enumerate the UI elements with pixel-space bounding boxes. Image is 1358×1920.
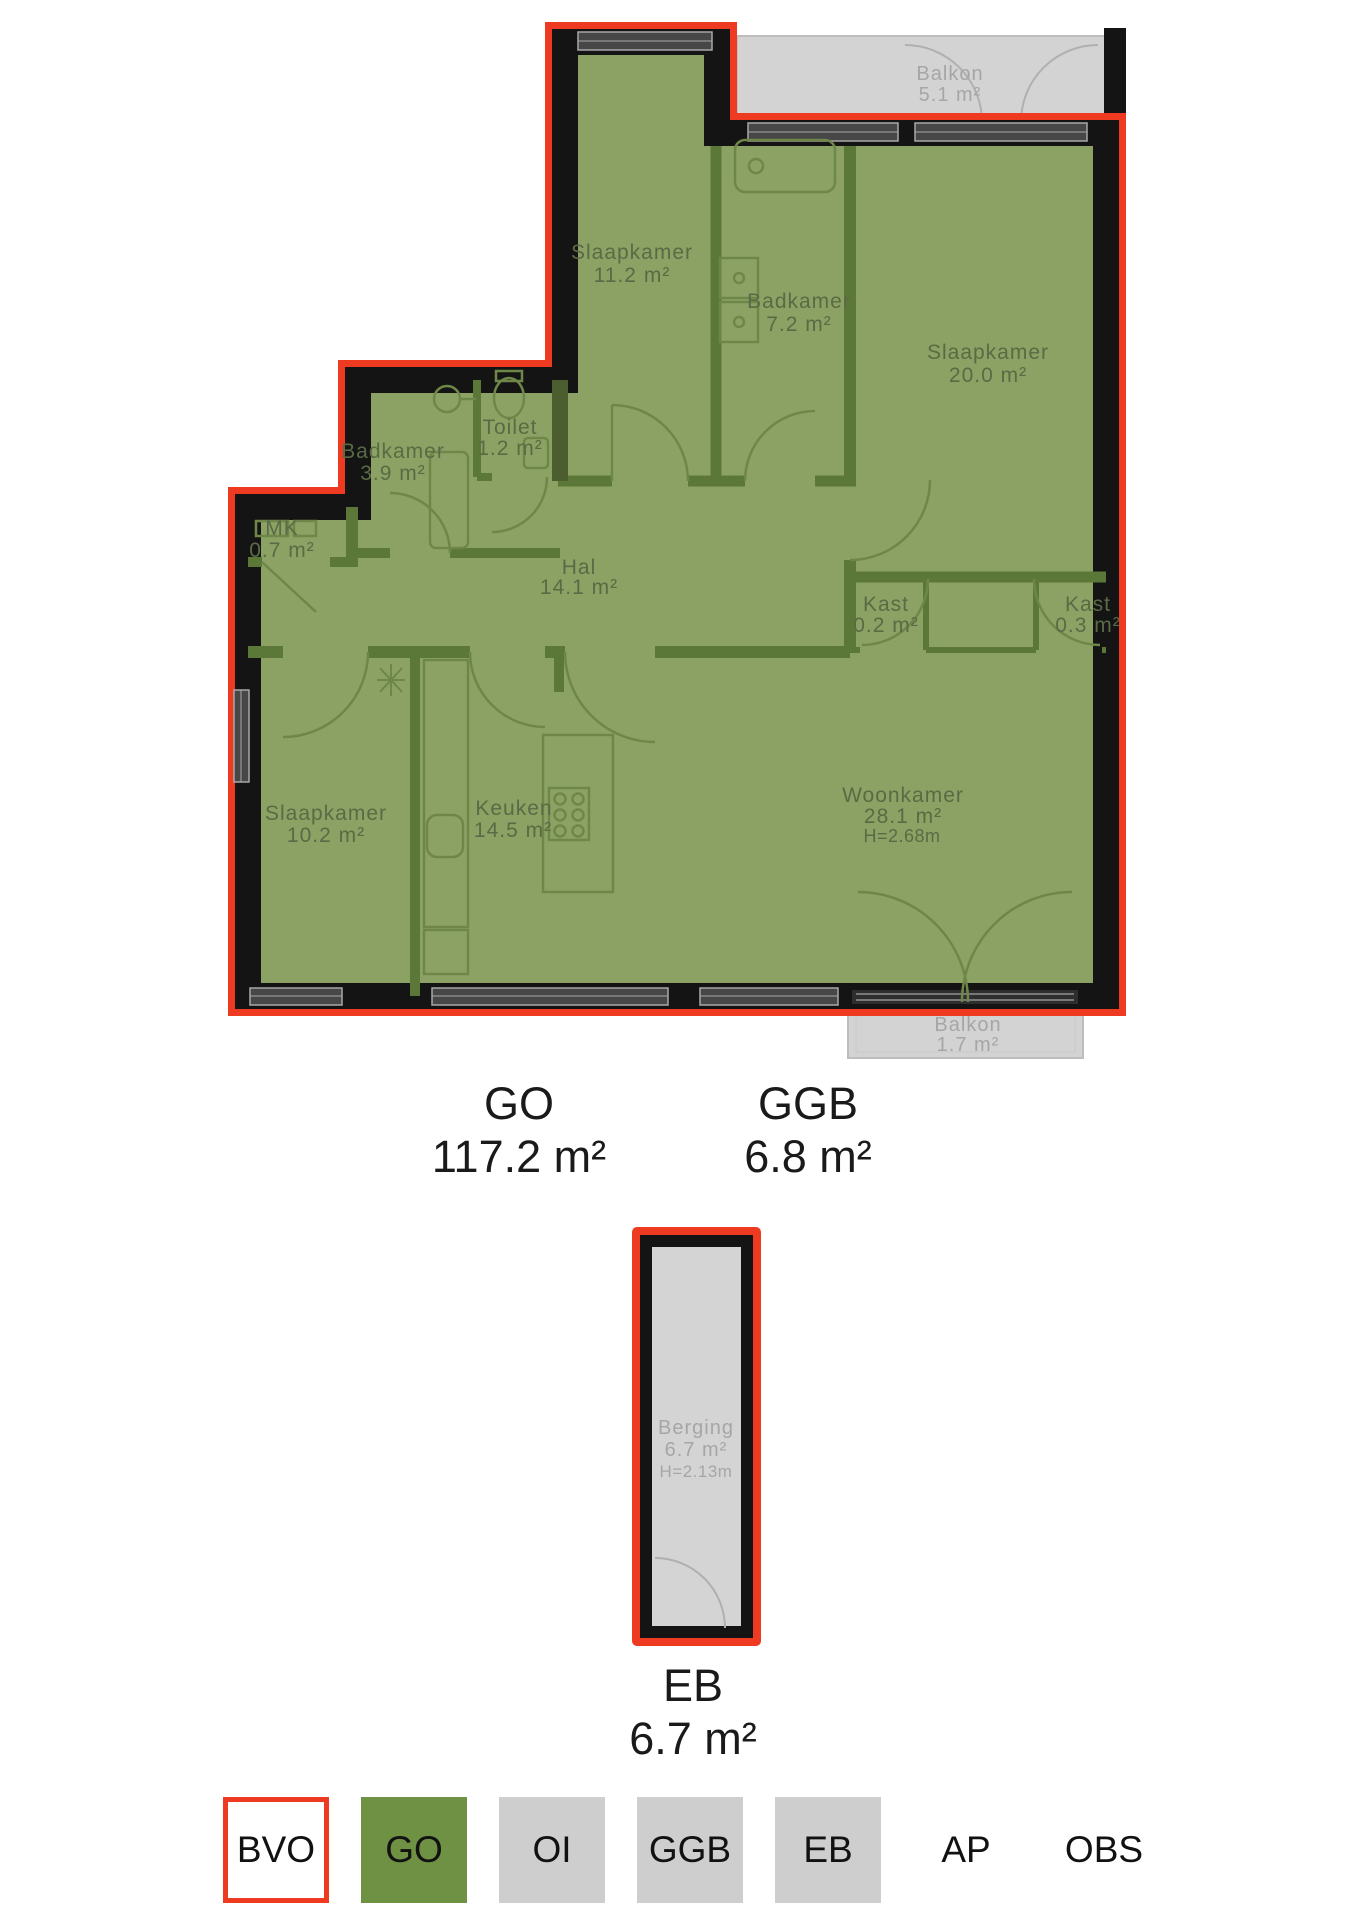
svg-text:H=2.13m: H=2.13m [660,1462,733,1481]
storage-label: Berging [658,1417,734,1439]
svg-text:5.1 m²: 5.1 m² [919,84,982,106]
svg-text:14.5 m²: 14.5 m² [474,819,552,842]
eb-area-label: EB 6.7 m² [543,1660,843,1765]
legend: BVO GO OI GGB EB AP OBS [223,1797,1157,1903]
legend-item-oi: OI [499,1797,605,1903]
floorplan-drawing: Slaapkamer 11.2 m² Badkamer 7.2 m² Slaap… [0,0,1358,1920]
legend-item-ggb: GGB [637,1797,743,1903]
balcony-top-label: Balkon [916,63,983,85]
svg-text:1.7 m²: 1.7 m² [937,1034,1000,1056]
room-label-toilet: Toilet [482,416,537,439]
svg-text:6.7 m²: 6.7 m² [665,1439,728,1461]
svg-text:3.9 m²: 3.9 m² [360,462,426,485]
ggb-code: GGB [658,1078,958,1131]
svg-text:1.2 m²: 1.2 m² [477,437,543,460]
room-label-badkamer-1: Badkamer [747,290,851,313]
room-label-slaapkamer-2: Slaapkamer [927,341,1049,364]
go-code: GO [369,1078,669,1131]
legend-item-ap: AP [913,1797,1019,1903]
go-value: 117.2 m² [369,1131,669,1184]
svg-text:7.2 m²: 7.2 m² [766,313,832,336]
room-label-mk: MK [265,517,299,540]
ggb-area-label: GGB 6.8 m² [658,1078,958,1183]
ggb-value: 6.8 m² [658,1131,958,1184]
eb-code: EB [543,1660,843,1713]
svg-text:14.1 m²: 14.1 m² [540,576,618,599]
room-label-kast-2: Kast [1065,593,1111,616]
room-label-woonkamer: Woonkamer [842,784,964,807]
sliding-door [852,990,1078,1004]
legend-item-eb: EB [775,1797,881,1903]
room-label-slaapkamer-3: Slaapkamer [265,802,387,825]
svg-text:11.2 m²: 11.2 m² [594,264,671,287]
go-area-label: GO 117.2 m² [369,1078,669,1183]
room-label-keuken: Keuken [475,797,552,820]
legend-item-obs: OBS [1051,1797,1157,1903]
svg-text:H=2.68m: H=2.68m [863,826,940,846]
room-label-badkamer-2: Badkamer [341,440,445,463]
svg-text:0.3 m²: 0.3 m² [1055,614,1121,637]
svg-text:10.2 m²: 10.2 m² [287,824,365,847]
svg-text:0.2 m²: 0.2 m² [853,614,919,637]
unit-walls-black [248,42,1106,996]
storage-unit: Berging 6.7 m² H=2.13m [632,1227,761,1646]
wall-block [1104,28,1126,126]
eb-value: 6.7 m² [543,1713,843,1766]
legend-item-bvo: BVO [223,1797,329,1903]
room-label-slaapkamer-1: Slaapkamer [571,241,693,264]
balcony-bottom-label: Balkon [934,1014,1001,1036]
legend-item-go: GO [361,1797,467,1903]
room-label-kast-1: Kast [863,593,909,616]
svg-text:0.7 m²: 0.7 m² [249,539,315,562]
svg-text:20.0 m²: 20.0 m² [949,364,1027,387]
svg-text:28.1 m²: 28.1 m² [864,805,942,828]
